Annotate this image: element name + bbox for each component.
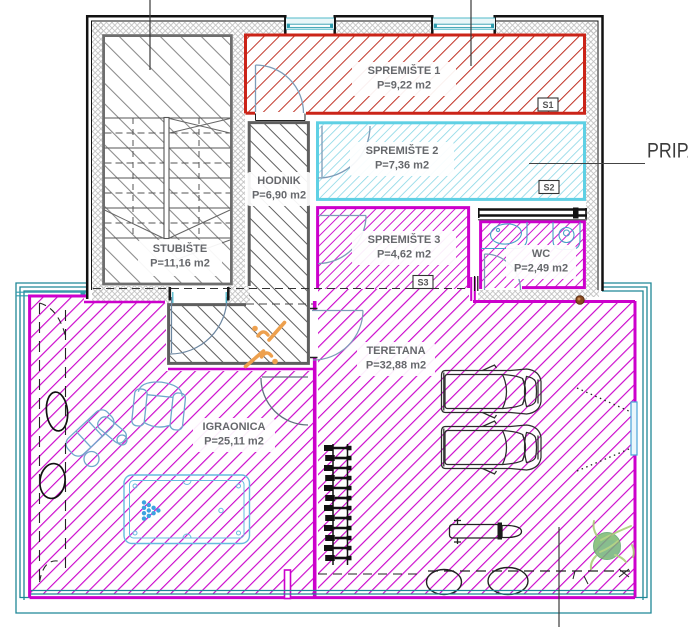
svg-text:TERETANA: TERETANA [366, 345, 425, 357]
svg-text:P=32,88 m2: P=32,88 m2 [366, 360, 426, 372]
svg-text:HODNIK: HODNIK [257, 175, 300, 187]
svg-text:P=6,90 m2: P=6,90 m2 [252, 190, 306, 202]
svg-text:SPREMIŠTE 3: SPREMIŠTE 3 [368, 233, 441, 246]
svg-text:S3: S3 [417, 278, 428, 288]
svg-text:P=4,62 m2: P=4,62 m2 [377, 249, 431, 261]
svg-text:PRIPAD: PRIPAD [647, 139, 688, 163]
svg-text:SPREMIŠTE 1: SPREMIŠTE 1 [368, 64, 441, 77]
svg-text:P=11,16 m2: P=11,16 m2 [150, 258, 210, 270]
svg-text:STUBIŠTE: STUBIŠTE [153, 242, 207, 255]
svg-text:P=25,11 m2: P=25,11 m2 [204, 436, 264, 448]
svg-text:P=9,22 m2: P=9,22 m2 [377, 80, 431, 92]
svg-text:P=7,36 m2: P=7,36 m2 [375, 160, 429, 172]
svg-text:WC: WC [532, 248, 550, 260]
svg-text:S1: S1 [542, 100, 553, 110]
svg-text:P=2,49 m2: P=2,49 m2 [514, 263, 568, 275]
svg-text:IGRAONICA: IGRAONICA [203, 421, 266, 433]
svg-text:SPREMIŠTE 2: SPREMIŠTE 2 [366, 144, 439, 157]
svg-text:S2: S2 [543, 183, 554, 193]
